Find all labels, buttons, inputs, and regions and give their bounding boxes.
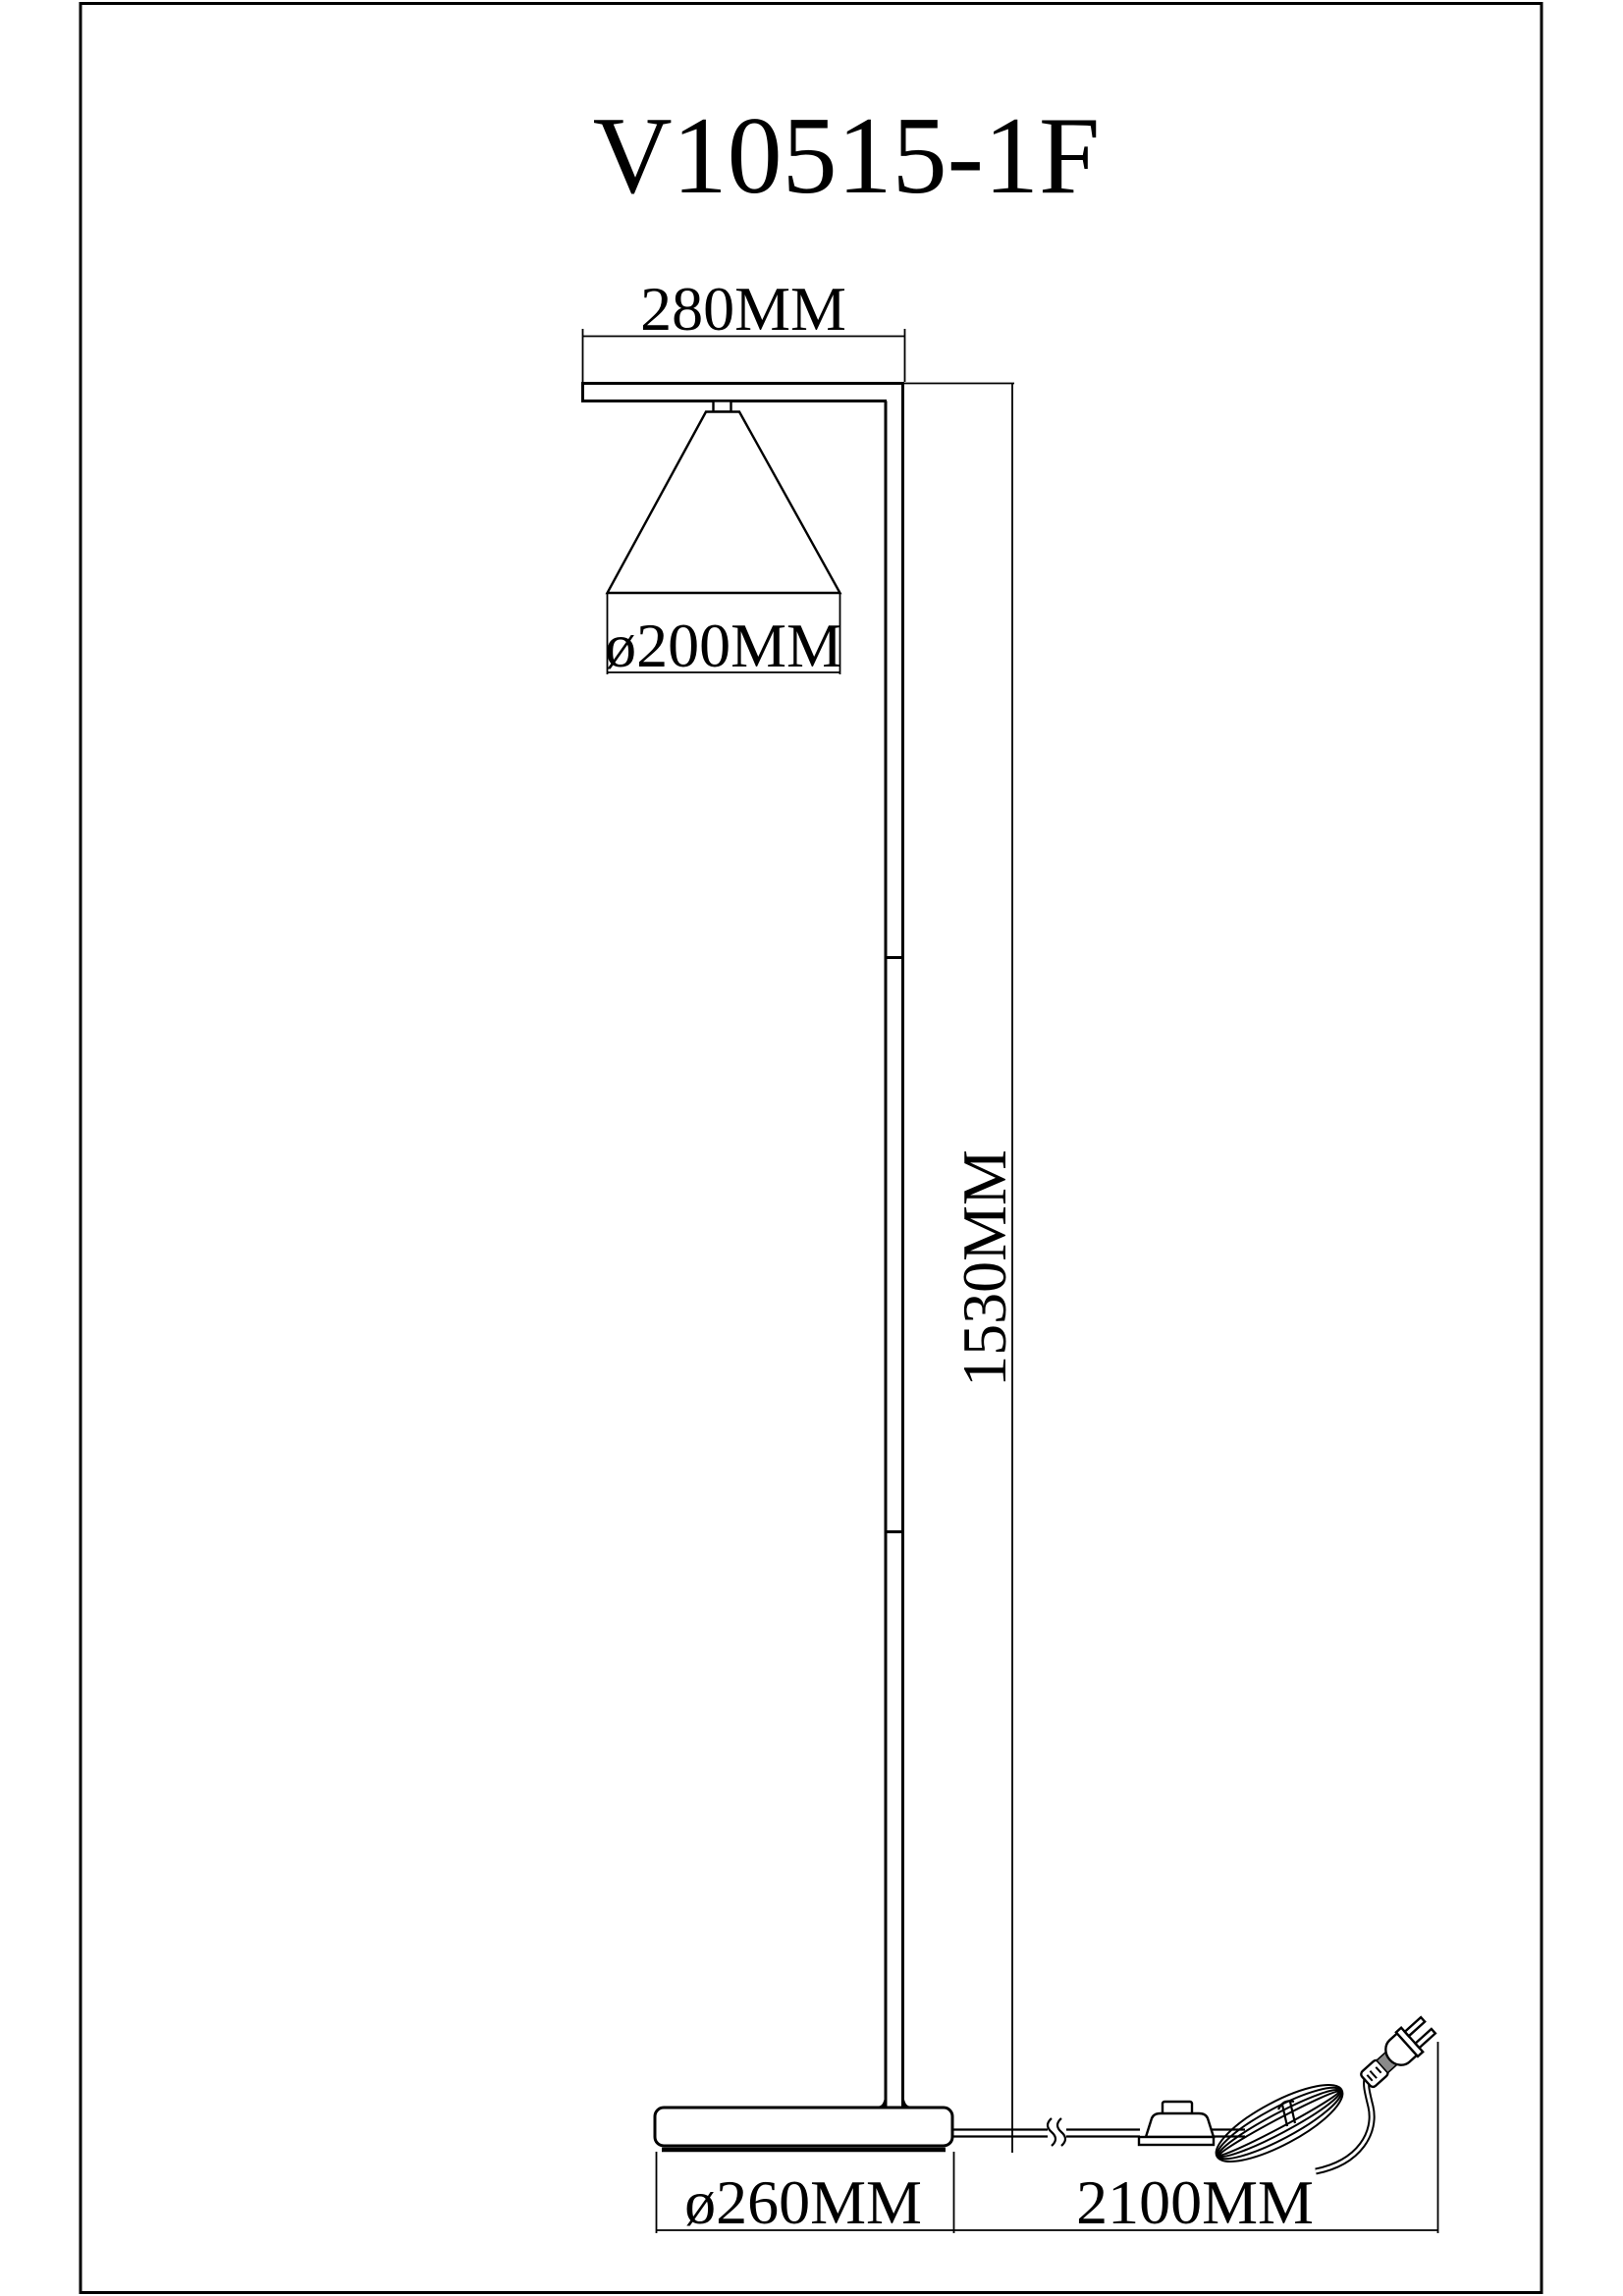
technical-drawing-page: V10515-1F 280MM (0, 0, 1623, 2296)
switch-base (1139, 2137, 1214, 2145)
drawing-title: V10515-1F (593, 95, 1100, 217)
plug-prong-upper (1405, 2017, 1425, 2036)
cord-break-icon (1048, 2118, 1055, 2146)
shade-socket (714, 401, 731, 412)
drawing-border (81, 4, 1542, 2293)
cord-coil (1207, 2071, 1352, 2175)
lamp-arm (581, 382, 904, 402)
cord-length-label: 2100MM (1076, 2167, 1314, 2237)
base-diameter-label: ø260MM (684, 2167, 922, 2237)
height-dimension: 1530MM (904, 384, 1019, 2154)
lamp-pole (879, 384, 910, 2109)
shade-diameter-dimension: ø200MM (605, 593, 842, 680)
base-diameter-dimension: ø260MM (657, 2152, 954, 2237)
shade-diameter-label: ø200MM (605, 611, 842, 680)
power-plug (1355, 2013, 1438, 2093)
pole-height-label: 1530MM (949, 1149, 1019, 1387)
arm-width-dimension: 280MM (583, 274, 905, 383)
lamp-base (655, 2108, 952, 2150)
arm-width-label: 280MM (640, 274, 846, 344)
lamp-shade (608, 412, 840, 594)
lamp-technical-drawing: V10515-1F 280MM (0, 0, 1623, 2296)
foot-switch (1139, 2102, 1214, 2145)
plug-prong-lower (1415, 2029, 1434, 2048)
